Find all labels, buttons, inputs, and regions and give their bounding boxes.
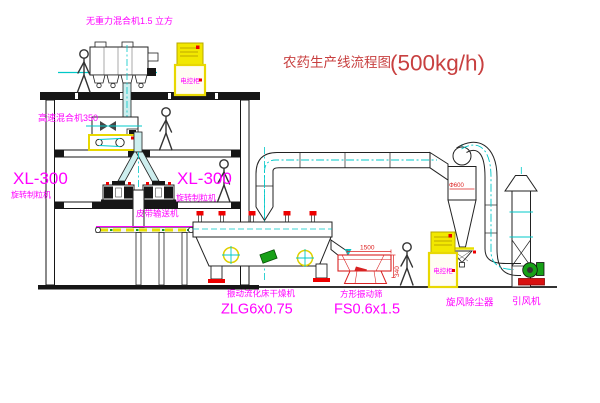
sieve-height-dim: 340: [394, 266, 401, 277]
control-cabinet-1: 电控柜: [175, 43, 205, 95]
label-dryer-model: ZLG6x0.75: [221, 302, 293, 318]
process-flow-diagram: 电控柜: [0, 0, 600, 403]
granulator-right-machine: [141, 181, 176, 203]
granulator-left-machine: [101, 181, 136, 203]
square-vibrating-sieve: 1500 340: [338, 245, 401, 284]
label-sieve-model: FS0.6x1.5: [334, 302, 400, 318]
belt-conveyor-machine: [95, 227, 193, 286]
label-granulator-left-name: 旋转制粒机: [11, 190, 51, 200]
cad-drawing: 电控柜: [0, 0, 600, 403]
label-granulator-right-name: 旋转制粒机: [176, 193, 216, 203]
diagram-title: 农药生产线流程图: [283, 55, 391, 70]
label-dryer-name: 振动流化床干燥机: [227, 289, 296, 299]
cabinet-1-label: 电控柜: [180, 76, 200, 85]
cyclone-diameter-dim: Φ600: [449, 183, 464, 189]
person-figure-roof: [78, 50, 91, 92]
label-granulator-left-model: XL-300: [13, 169, 68, 188]
label-belt-conveyor: 皮带输送机: [136, 209, 179, 219]
label-cyclone: 旋风除尘器: [446, 297, 494, 309]
gravity-free-mixer: [58, 42, 158, 117]
cabinet-2-label: 电控柜: [433, 266, 453, 275]
control-cabinet-2: 电控柜: [429, 232, 457, 287]
sieve-width-dim: 1500: [360, 245, 375, 252]
person-figure-floor2: [160, 108, 173, 150]
title-capacity: (500kg/h): [390, 51, 485, 76]
label-sieve-name: 方形振动筛: [340, 289, 383, 299]
label-gravity-mixer: 无重力混合机1.5 立方: [86, 15, 173, 26]
label-granulator-right-model: XL-300: [177, 169, 232, 188]
label-highspeed-mixer: 高速混合机350: [38, 112, 98, 123]
exhaust-duct: [256, 153, 448, 221]
label-fan: 引风机: [512, 296, 541, 308]
person-figure-sieve: [401, 243, 414, 285]
